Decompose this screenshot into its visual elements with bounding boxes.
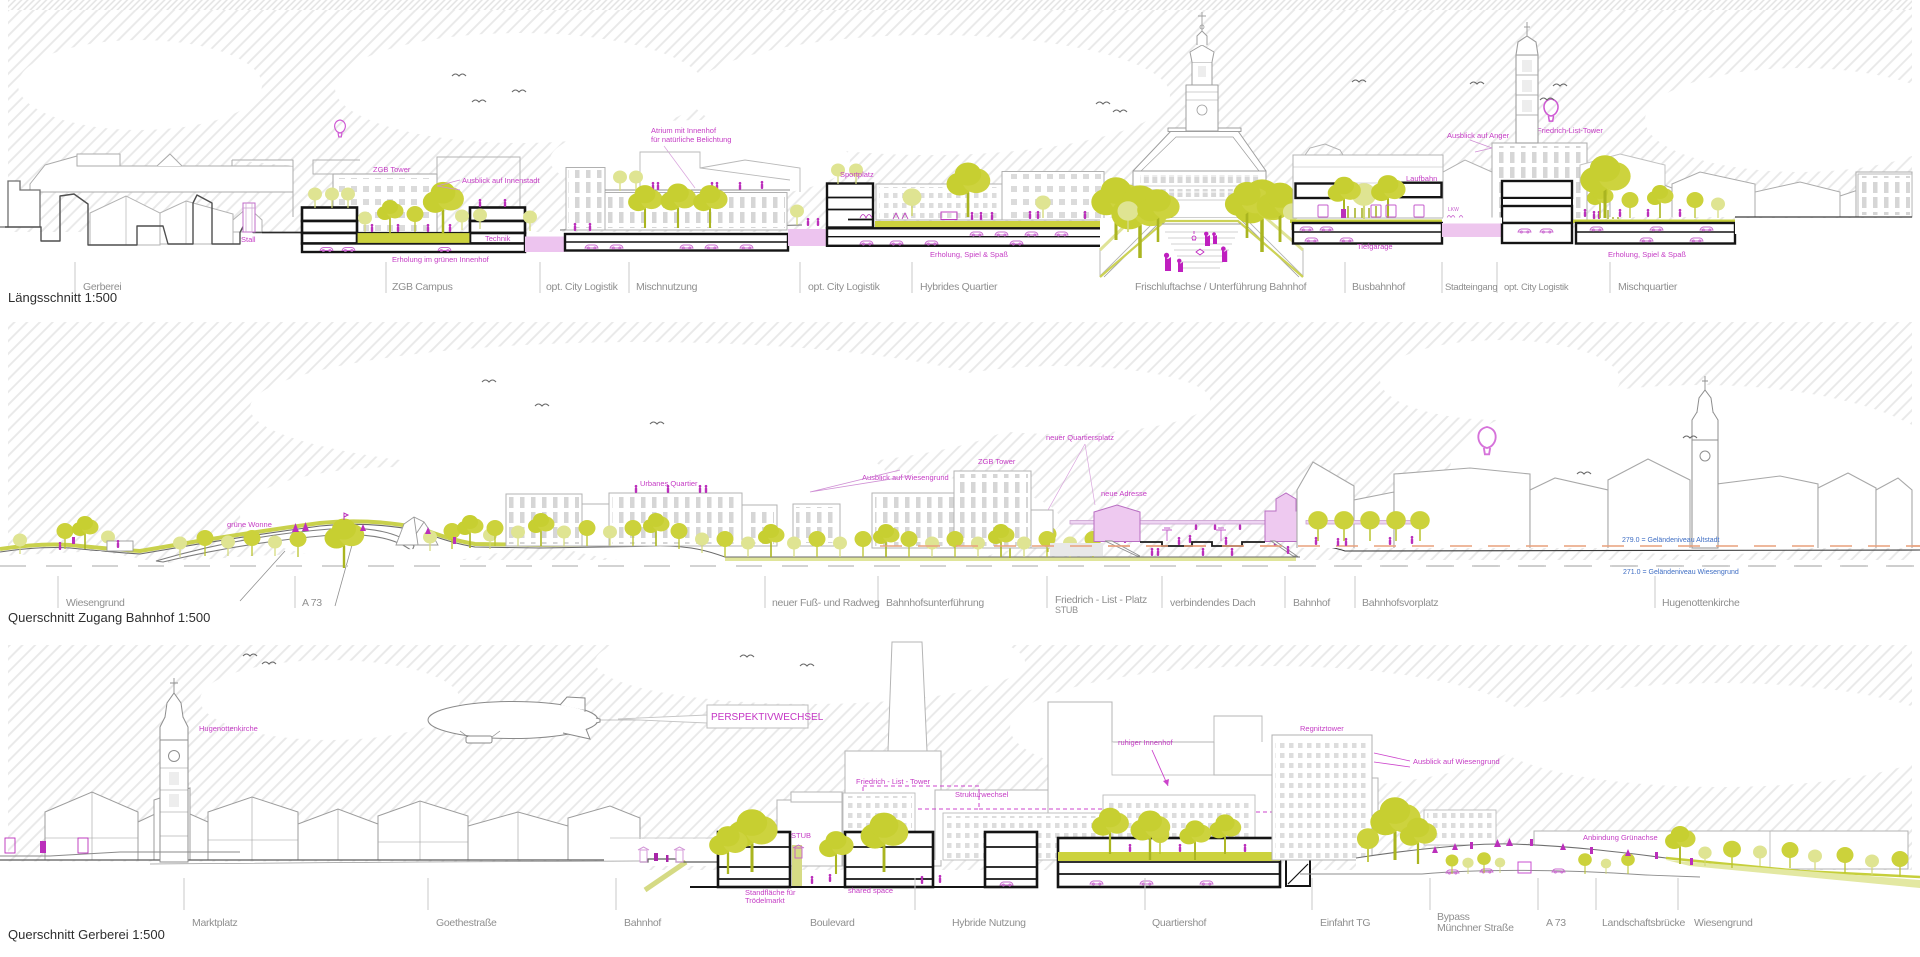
svg-text:Erholung im grünen Innenhof: Erholung im grünen Innenhof [392,255,490,264]
svg-text:ruhiger Innenhof: ruhiger Innenhof [1118,738,1174,747]
svg-text:279.0 = Geländeniveau Altstadt: 279.0 = Geländeniveau Altstadt [1622,537,1720,544]
svg-text:Bahnhofsvorplatz: Bahnhofsvorplatz [1362,597,1438,609]
svg-text:Busbahnhof: Busbahnhof [1352,281,1405,293]
svg-text:A 73: A 73 [1546,917,1566,929]
svg-text:271.0 = Geländeniveau Wiesengr: 271.0 = Geländeniveau Wiesengrund [1623,569,1739,576]
svg-text:Wiesengrund: Wiesengrund [66,597,125,609]
svg-text:neue Adresse: neue Adresse [1101,489,1147,498]
svg-text:Friedrich - List - Tower: Friedrich - List - Tower [856,777,931,786]
svg-text:Hybride Nutzung: Hybride Nutzung [952,917,1026,929]
svg-text:Bahnhofsunterführung: Bahnhofsunterführung [886,597,984,609]
svg-text:neuer Quartiersplatz: neuer Quartiersplatz [1046,433,1114,442]
svg-text:Laufbahn: Laufbahn [1406,174,1437,183]
svg-text:LKW: LKW [1448,207,1459,213]
svg-text:ZGB Tower: ZGB Tower [373,165,411,174]
svg-text:Querschnitt Zugang Bahnhof 1:5: Querschnitt Zugang Bahnhof 1:500 [8,610,210,625]
svg-text:Hybrides Quartier: Hybrides Quartier [920,281,998,293]
svg-text:Friedrich-List-Tower: Friedrich-List-Tower [1537,126,1603,135]
svg-text:STUB: STUB [791,831,811,840]
svg-text:Technik: Technik [485,234,511,243]
svg-text:Strukturwechsel: Strukturwechsel [955,790,1009,799]
svg-text:Frischluftachse / Unterführung: Frischluftachse / Unterführung Bahnhof [1135,281,1307,293]
svg-text:opt. City Logistik: opt. City Logistik [1504,282,1569,293]
svg-text:STUB: STUB [1055,605,1078,615]
svg-text:Bahnhof: Bahnhof [1293,597,1330,609]
svg-text:shared space: shared space [848,886,893,895]
svg-text:ZGB Campus: ZGB Campus [392,281,453,293]
svg-text:Erholung, Spiel & Spaß: Erholung, Spiel & Spaß [1608,250,1686,259]
svg-text:Münchner Straße: Münchner Straße [1437,922,1514,934]
svg-text:Atrium mit Innenhof: Atrium mit Innenhof [651,126,717,135]
svg-text:Tiefgarage: Tiefgarage [1357,242,1393,251]
svg-text:Querschnitt Gerberei 1:500: Querschnitt Gerberei 1:500 [8,927,165,942]
svg-text:Urbanes Quartier: Urbanes Quartier [640,479,698,488]
svg-text:Landschaftsbrücke: Landschaftsbrücke [1602,917,1685,929]
svg-text:Ausblick auf Anger: Ausblick auf Anger [1447,131,1510,140]
svg-text:Wiesengrund: Wiesengrund [1694,917,1753,929]
svg-text:Regnitztower: Regnitztower [1300,724,1344,733]
svg-text:Mischnutzung: Mischnutzung [636,281,698,293]
svg-text:A 73: A 73 [302,597,322,609]
svg-text:Einfahrt TG: Einfahrt TG [1320,917,1370,929]
svg-text:Sportplatz: Sportplatz [840,170,874,179]
svg-text:Erholung, Spiel & Spaß: Erholung, Spiel & Spaß [930,250,1008,259]
svg-text:Ausblick auf Wiesengrund: Ausblick auf Wiesengrund [862,473,949,482]
svg-text:Stadteingang: Stadteingang [1445,282,1497,293]
svg-text:grüne Wonne: grüne Wonne [227,520,272,529]
svg-text:für natürliche Belichtung: für natürliche Belichtung [651,135,731,144]
svg-text:verbindendes Dach: verbindendes Dach [1170,597,1256,609]
svg-text:Trödelmarkt: Trödelmarkt [745,896,786,905]
svg-text:Hugenottenkirche: Hugenottenkirche [199,724,258,733]
svg-text:ZGB Tower: ZGB Tower [978,457,1016,466]
svg-text:Ausblick auf Innenstadt: Ausblick auf Innenstadt [462,176,540,185]
svg-text:Quartiershof: Quartiershof [1152,917,1207,929]
svg-text:Anbindung Grünachse: Anbindung Grünachse [1583,833,1658,842]
svg-text:Hugenottenkirche: Hugenottenkirche [1662,597,1740,609]
svg-text:opt. City Logistik: opt. City Logistik [546,281,619,293]
svg-text:Bahnhof: Bahnhof [624,917,661,929]
svg-text:Stall: Stall [241,235,256,244]
svg-text:Boulevard: Boulevard [810,917,855,929]
svg-text:Marktplatz: Marktplatz [192,917,237,929]
svg-text:Goethestraße: Goethestraße [436,917,497,929]
svg-text:PERSPEKTIVWECHSEL: PERSPEKTIVWECHSEL [711,712,824,723]
svg-text:Längsschnitt 1:500: Längsschnitt 1:500 [8,290,117,305]
svg-text:opt. City Logistik: opt. City Logistik [808,281,881,293]
svg-text:Mischquartier: Mischquartier [1618,281,1678,293]
svg-text:Ausblick auf Wiesengrund: Ausblick auf Wiesengrund [1413,757,1500,766]
svg-text:neuer Fuß- und Radweg: neuer Fuß- und Radweg [772,597,880,609]
